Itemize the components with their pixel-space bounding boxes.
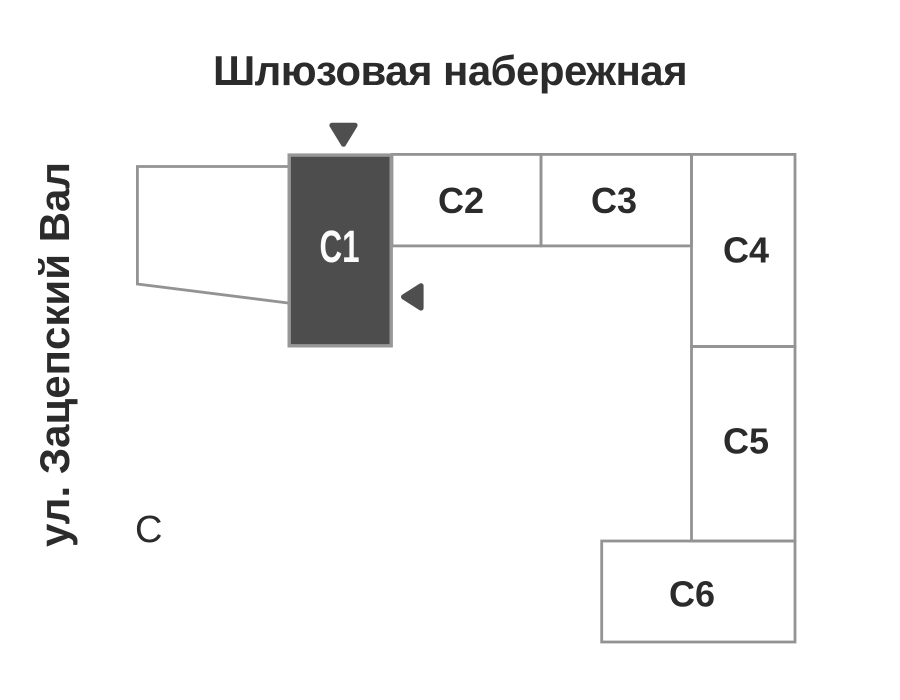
svg-text:Шлюзовая набережная: Шлюзовая набережная (213, 47, 687, 94)
svg-text:С2: С2 (438, 180, 484, 221)
svg-text:С: С (135, 509, 162, 551)
svg-text:С4: С4 (723, 230, 769, 271)
svg-text:С3: С3 (591, 180, 637, 221)
svg-text:С5: С5 (723, 421, 769, 462)
svg-text:С1: С1 (320, 221, 360, 272)
svg-text:С6: С6 (669, 574, 715, 615)
svg-text:ул. Зацепский Вал: ул. Зацепский Вал (31, 162, 78, 547)
